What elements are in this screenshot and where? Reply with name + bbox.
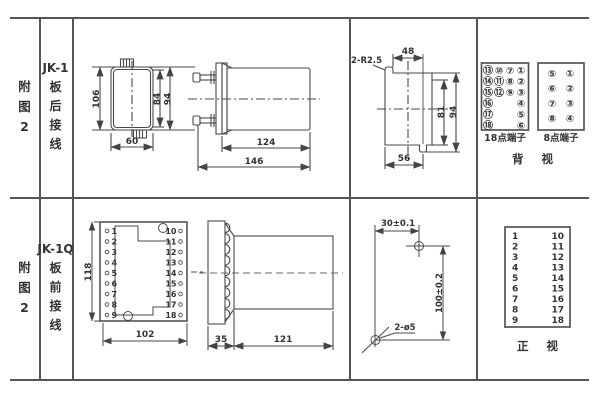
terminal-8-5: ⑤ <box>548 69 556 80</box>
svg-text:14: 14 <box>165 269 177 278</box>
svg-text:9: 9 <box>512 316 518 326</box>
svg-text:11: 11 <box>551 243 564 253</box>
terminal-18-8: ⑧ <box>506 77 514 88</box>
terminal-8-4: ④ <box>566 114 574 125</box>
dim-hole-spacing-x: 30±0.1 <box>381 219 415 229</box>
terminal-18-3: ③ <box>517 88 525 99</box>
terminal-8-7: ⑦ <box>548 99 556 110</box>
svg-text:1: 1 <box>512 232 518 242</box>
terminal-stud-bottom <box>193 114 216 127</box>
jk1-front-view <box>92 59 195 151</box>
svg-text:16: 16 <box>551 295 564 305</box>
svg-text:15: 15 <box>551 285 564 295</box>
terminal-18-18: ⑱ <box>483 119 493 132</box>
terminal-8-2: ② <box>566 84 574 95</box>
label-hole-diameter: 2-ø5 <box>394 323 415 333</box>
dim-hole-spacing-y: 100±0.2 <box>435 273 445 313</box>
row2-model-label: JK-1Q <box>37 242 73 256</box>
terminal-18-9: ⑨ <box>506 88 514 99</box>
terminal-18-17: ⑰ <box>483 108 493 121</box>
svg-text:4: 4 <box>112 259 118 268</box>
svg-text:17: 17 <box>551 306 564 316</box>
svg-text:5: 5 <box>112 269 118 278</box>
svg-text:9: 9 <box>112 311 118 320</box>
terminal-8-3: ③ <box>566 99 574 110</box>
row1-figure-cell: 附图2 <box>10 17 39 197</box>
terminal-18-2: ② <box>517 77 525 88</box>
mounting-hole-bottom <box>124 312 133 321</box>
terminal-numbers-8: ⑤ ① ⑥ ② ⑦ ③ ⑧ ④ <box>548 69 574 125</box>
dim-front-width: 60 <box>126 137 139 147</box>
dim-side-body: 121 <box>274 335 293 345</box>
svg-text:6: 6 <box>512 285 518 295</box>
front-view-terminal-table: 1 2 3 4 5 6 7 8 9 10 11 12 13 14 15 16 1… <box>476 197 600 379</box>
label-18-point: 18点端子 <box>484 132 526 144</box>
terminal-table-right-column: 10 11 12 13 14 15 16 17 18 <box>551 232 564 326</box>
terminal-18-1: ① <box>517 66 525 77</box>
dim-front-inner-height: 84 <box>153 93 163 106</box>
jk1-front-and-side-view: 106 60 84 94 <box>72 17 349 198</box>
dim-front-outer-height: 94 <box>164 93 174 106</box>
row1-title-cell: JK-1 板后接线 <box>39 17 72 197</box>
dim-cutout-bottom-width: 56 <box>398 154 411 164</box>
svg-text:6: 6 <box>112 280 118 289</box>
table-border-bottom <box>10 379 589 381</box>
row1-wiring-label: 板后接线 <box>48 78 64 154</box>
svg-text:12: 12 <box>551 253 564 263</box>
caption-rear-view: 背 视 <box>512 152 560 166</box>
svg-text:2: 2 <box>512 243 518 253</box>
terminal-8-1: ① <box>566 69 574 80</box>
svg-text:11: 11 <box>165 238 177 247</box>
front-terminals-right <box>179 229 183 317</box>
svg-text:12: 12 <box>165 248 176 257</box>
row1-figure-label: 附图2 <box>17 77 33 137</box>
terminal-18-16: ⑯ <box>483 97 493 110</box>
terminal-18-12: ⑫ <box>494 86 504 99</box>
dim-side-plate: 35 <box>215 335 228 345</box>
svg-text:14: 14 <box>551 274 564 284</box>
svg-text:15: 15 <box>165 280 177 289</box>
label-corner-radius: 2-R2.5 <box>351 56 382 66</box>
dim-cutout-top-width: 48 <box>402 47 415 57</box>
svg-text:10: 10 <box>165 227 177 236</box>
terminal-18-15: ⑮ <box>483 86 493 99</box>
svg-text:2: 2 <box>112 238 118 247</box>
svg-text:18: 18 <box>551 316 564 326</box>
front-terminals-left <box>105 229 109 317</box>
dim-cutout-height-2: 94 <box>449 106 459 119</box>
jk1q-side-view <box>199 221 343 350</box>
svg-text:7: 7 <box>512 295 518 305</box>
svg-text:13: 13 <box>551 264 564 274</box>
svg-text:16: 16 <box>165 290 177 299</box>
terminal-18-10: ⑩ <box>495 66 503 77</box>
terminal-18-13: ⑬ <box>483 64 493 77</box>
terminal-8-8: ⑧ <box>548 114 556 125</box>
row2-figure-cell: 附图2 <box>10 197 39 379</box>
svg-text:8: 8 <box>512 306 518 316</box>
svg-text:8: 8 <box>112 301 118 310</box>
jk1-side-view <box>188 63 320 171</box>
terminal-18-6: ⑥ <box>517 121 525 132</box>
terminal-18-5: ⑤ <box>517 110 525 121</box>
terminal-8-6: ⑥ <box>548 84 556 95</box>
terminal-18-7: ⑦ <box>506 66 514 77</box>
row1-model-label: JK-1 <box>42 61 68 75</box>
row2-wiring-label: 板前接线 <box>48 259 64 335</box>
svg-text:1: 1 <box>112 227 118 236</box>
engineering-drawing-sheet: 附图2 JK-1 板后接线 附图2 JK-1Q 板前接线 <box>0 0 600 400</box>
svg-text:10: 10 <box>551 232 564 242</box>
dim-front-panel-height: 118 <box>84 263 94 282</box>
label-8-point: 8点端子 <box>543 132 579 144</box>
svg-text:17: 17 <box>165 301 176 310</box>
row2-title-cell: JK-1Q 板前接线 <box>39 197 72 379</box>
terminal-table-left-column: 1 2 3 4 5 6 7 8 9 <box>512 232 518 326</box>
terminal-18-14: ⑭ <box>483 75 493 88</box>
dim-cutout-height-1: 81 <box>437 106 447 119</box>
dim-front-height: 106 <box>92 90 102 109</box>
svg-text:13: 13 <box>165 259 176 268</box>
front-terminal-numbers-left: 1 2 3 4 5 6 7 8 9 <box>112 227 118 320</box>
svg-text:18: 18 <box>165 311 177 320</box>
svg-text:7: 7 <box>112 290 118 299</box>
dim-side-body: 124 <box>257 138 276 148</box>
front-terminal-numbers-right: 10 11 12 13 14 15 16 17 18 <box>165 227 177 320</box>
svg-text:4: 4 <box>512 264 518 274</box>
terminal-18-4: ④ <box>517 99 525 110</box>
jk1q-front-and-side-view: 1 2 3 4 5 6 7 8 9 10 11 12 13 14 15 16 1… <box>72 197 349 379</box>
terminal-18-11: ⑪ <box>494 75 504 88</box>
caption-front-view: 正 视 <box>517 339 565 353</box>
rear-view-terminals: ⑬ ⑩ ⑦ ① ⑭ ⑪ ⑧ ② ⑮ ⑫ ⑨ ③ ⑯ ④ ⑰ ⑤ ⑱ ⑥ ⑤ ① … <box>476 17 600 198</box>
terminal-numbers-18: ⑬ ⑩ ⑦ ① ⑭ ⑪ ⑧ ② ⑮ ⑫ ⑨ ③ ⑯ ④ ⑰ ⑤ ⑱ ⑥ <box>483 64 525 132</box>
jk1-panel-cutout: 2-R2.5 48 81 94 56 <box>349 17 476 198</box>
row2-figure-label: 附图2 <box>17 258 33 318</box>
svg-text:3: 3 <box>112 248 118 257</box>
dim-side-total: 146 <box>245 157 264 167</box>
drilling-plan: 30±0.1 100±0.2 2-ø5 <box>349 197 476 379</box>
svg-text:3: 3 <box>512 253 518 263</box>
terminal-stud-top <box>193 71 216 84</box>
svg-text:5: 5 <box>512 274 518 284</box>
dim-front-panel-width: 102 <box>136 330 155 340</box>
